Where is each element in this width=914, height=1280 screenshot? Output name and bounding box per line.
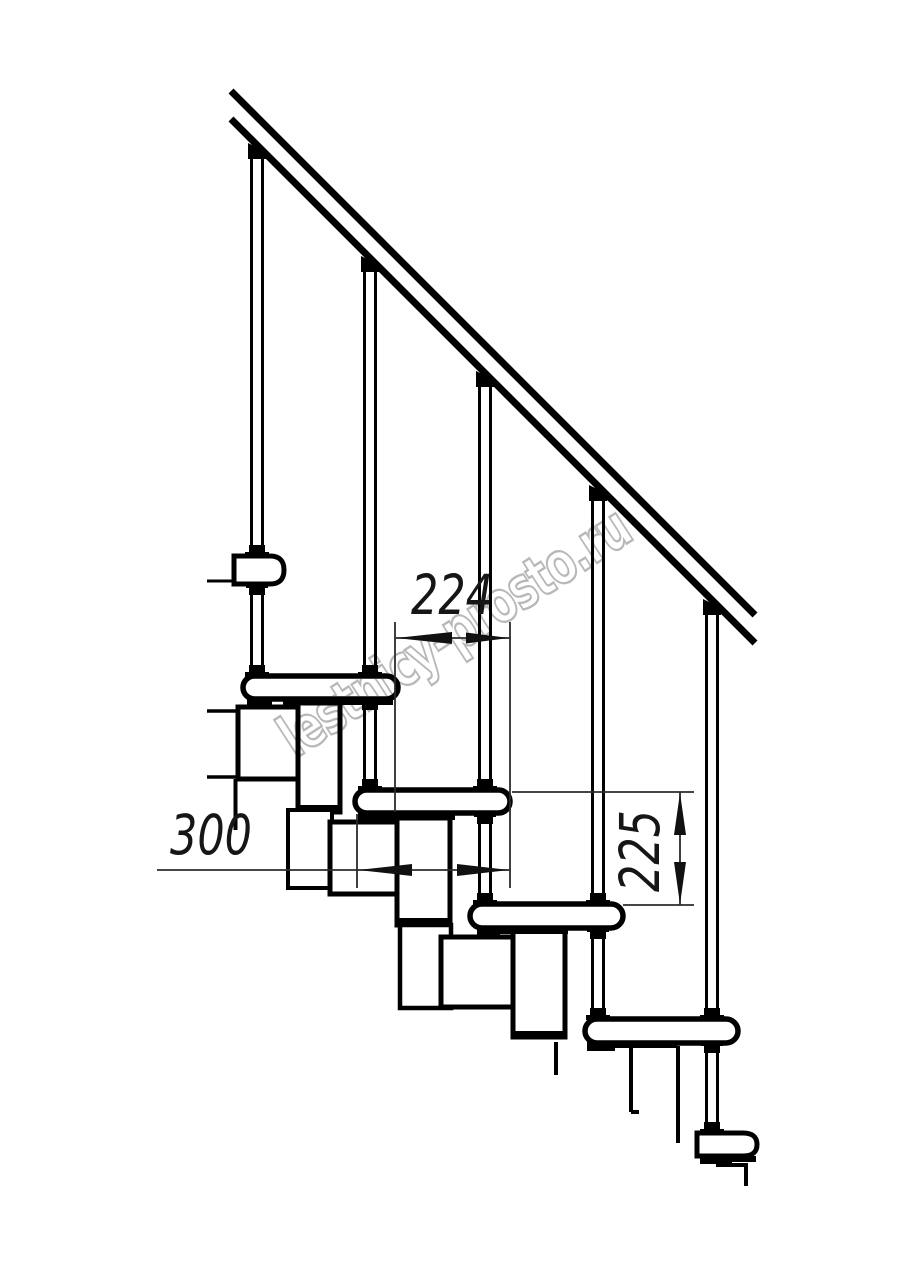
dim-300-arrow-right	[457, 864, 509, 876]
tread-2	[355, 790, 510, 813]
tread-4	[585, 1019, 738, 1043]
dimension-label-tread-depth: 300	[167, 806, 254, 864]
module3-plate	[441, 937, 518, 1007]
baluster-1	[252, 150, 263, 676]
tread-3	[470, 904, 623, 928]
module3-tube	[513, 930, 565, 1037]
module3-joint	[515, 1031, 563, 1038]
module2-grip	[288, 810, 332, 888]
dim-225-arrow-down	[674, 862, 686, 904]
tread-0-stub	[234, 556, 284, 584]
dim-225-arrow-up	[674, 793, 686, 835]
dimension-label-rise: 225	[611, 800, 669, 901]
module5-cut-line	[716, 1165, 746, 1186]
module2-plate	[330, 822, 404, 894]
tread-5-stub	[697, 1133, 757, 1156]
drawing-canvas: 224 300 225 lestnicy-prosto.ru	[0, 0, 914, 1280]
